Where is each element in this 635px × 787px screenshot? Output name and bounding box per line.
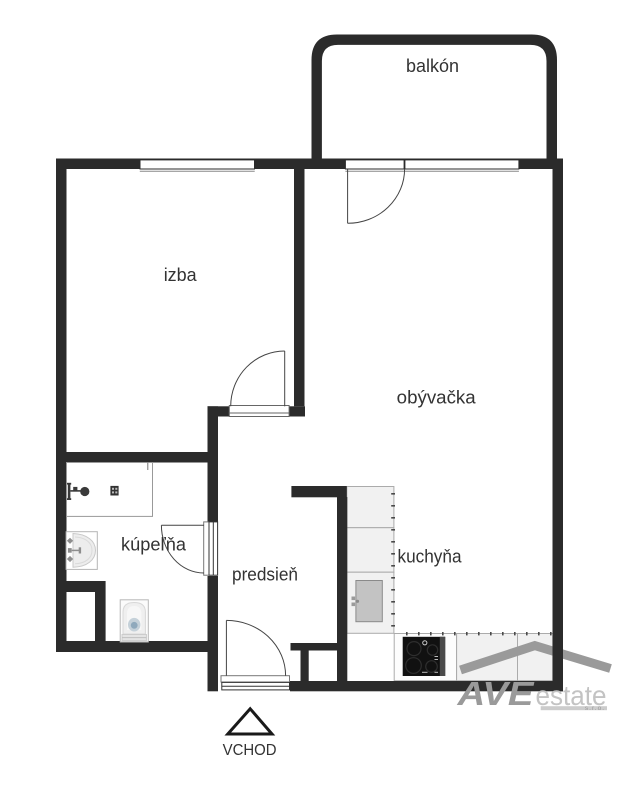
svg-text:kúpeľňa: kúpeľňa — [121, 535, 187, 555]
svg-text:balkón: balkón — [406, 56, 459, 76]
svg-text:s.r.o.: s.r.o. — [585, 705, 605, 712]
svg-text:AVE: AVE — [456, 676, 535, 713]
svg-text:kuchyňa: kuchyňa — [398, 547, 463, 567]
svg-text:predsieň: predsieň — [232, 565, 298, 585]
svg-text:obývačka: obývačka — [397, 388, 477, 408]
svg-text:VCHOD: VCHOD — [223, 742, 277, 759]
svg-text:izba: izba — [164, 265, 198, 285]
